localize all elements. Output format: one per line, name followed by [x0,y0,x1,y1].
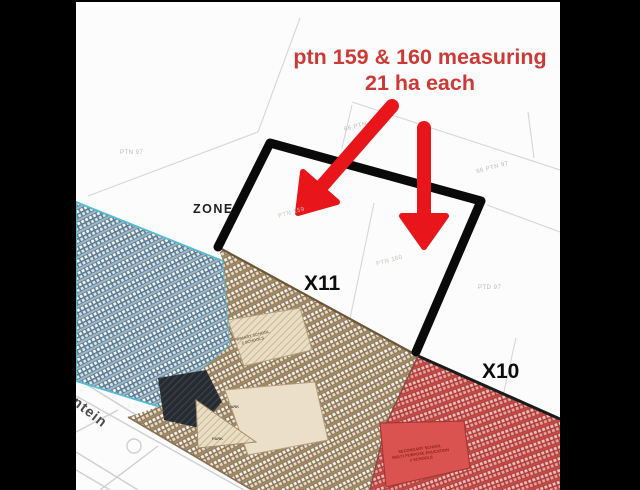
x10-label: X10 [482,360,519,384]
annotation-text: ptn 159 & 160 measuring 21 ha each [293,44,546,96]
park-label: PARK [228,404,239,409]
parcel-label: PTD 97 [478,285,501,291]
zone-label: ZONE [193,202,234,216]
screenshot: ptn 159 & 160 measuring 21 ha each ZONE … [0,0,640,490]
annotation-line2: 21 ha each [293,70,546,96]
parcel-label: PTN 97 [120,150,143,156]
x11-label: X11 [304,272,340,296]
park-label: PARK [212,436,223,441]
map-photo: ptn 159 & 160 measuring 21 ha each ZONE … [76,0,560,490]
annotation-line1: ptn 159 & 160 measuring [293,44,546,70]
photo-top-edge [76,0,560,2]
vertical-arrow-head [402,216,446,247]
annotation-arrows [298,106,446,247]
